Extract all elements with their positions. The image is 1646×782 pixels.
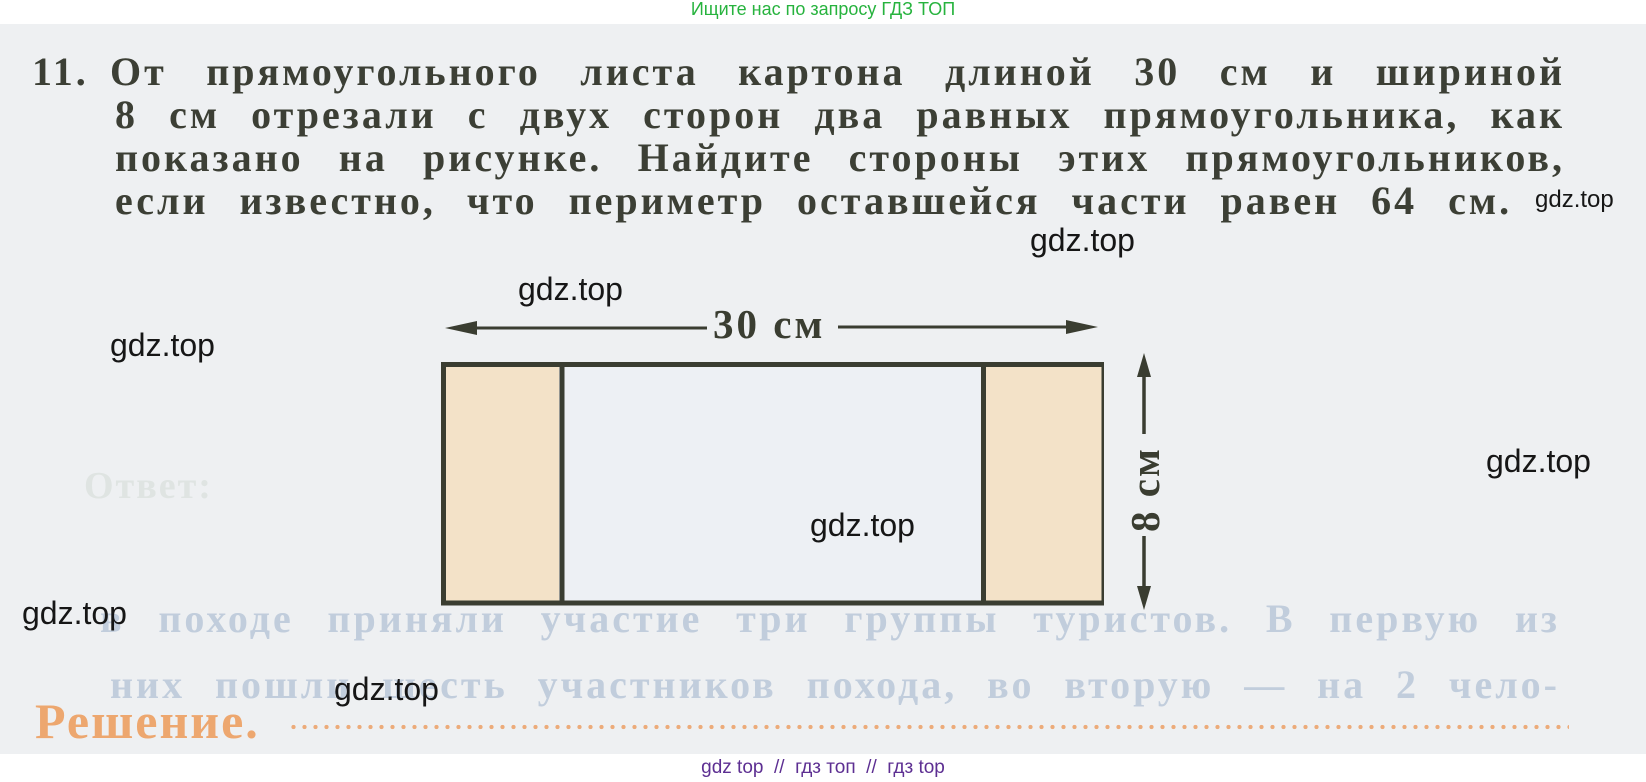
- svg-text:30 см: 30 см: [713, 301, 825, 347]
- svg-text:8 см: 8 см: [1122, 447, 1168, 532]
